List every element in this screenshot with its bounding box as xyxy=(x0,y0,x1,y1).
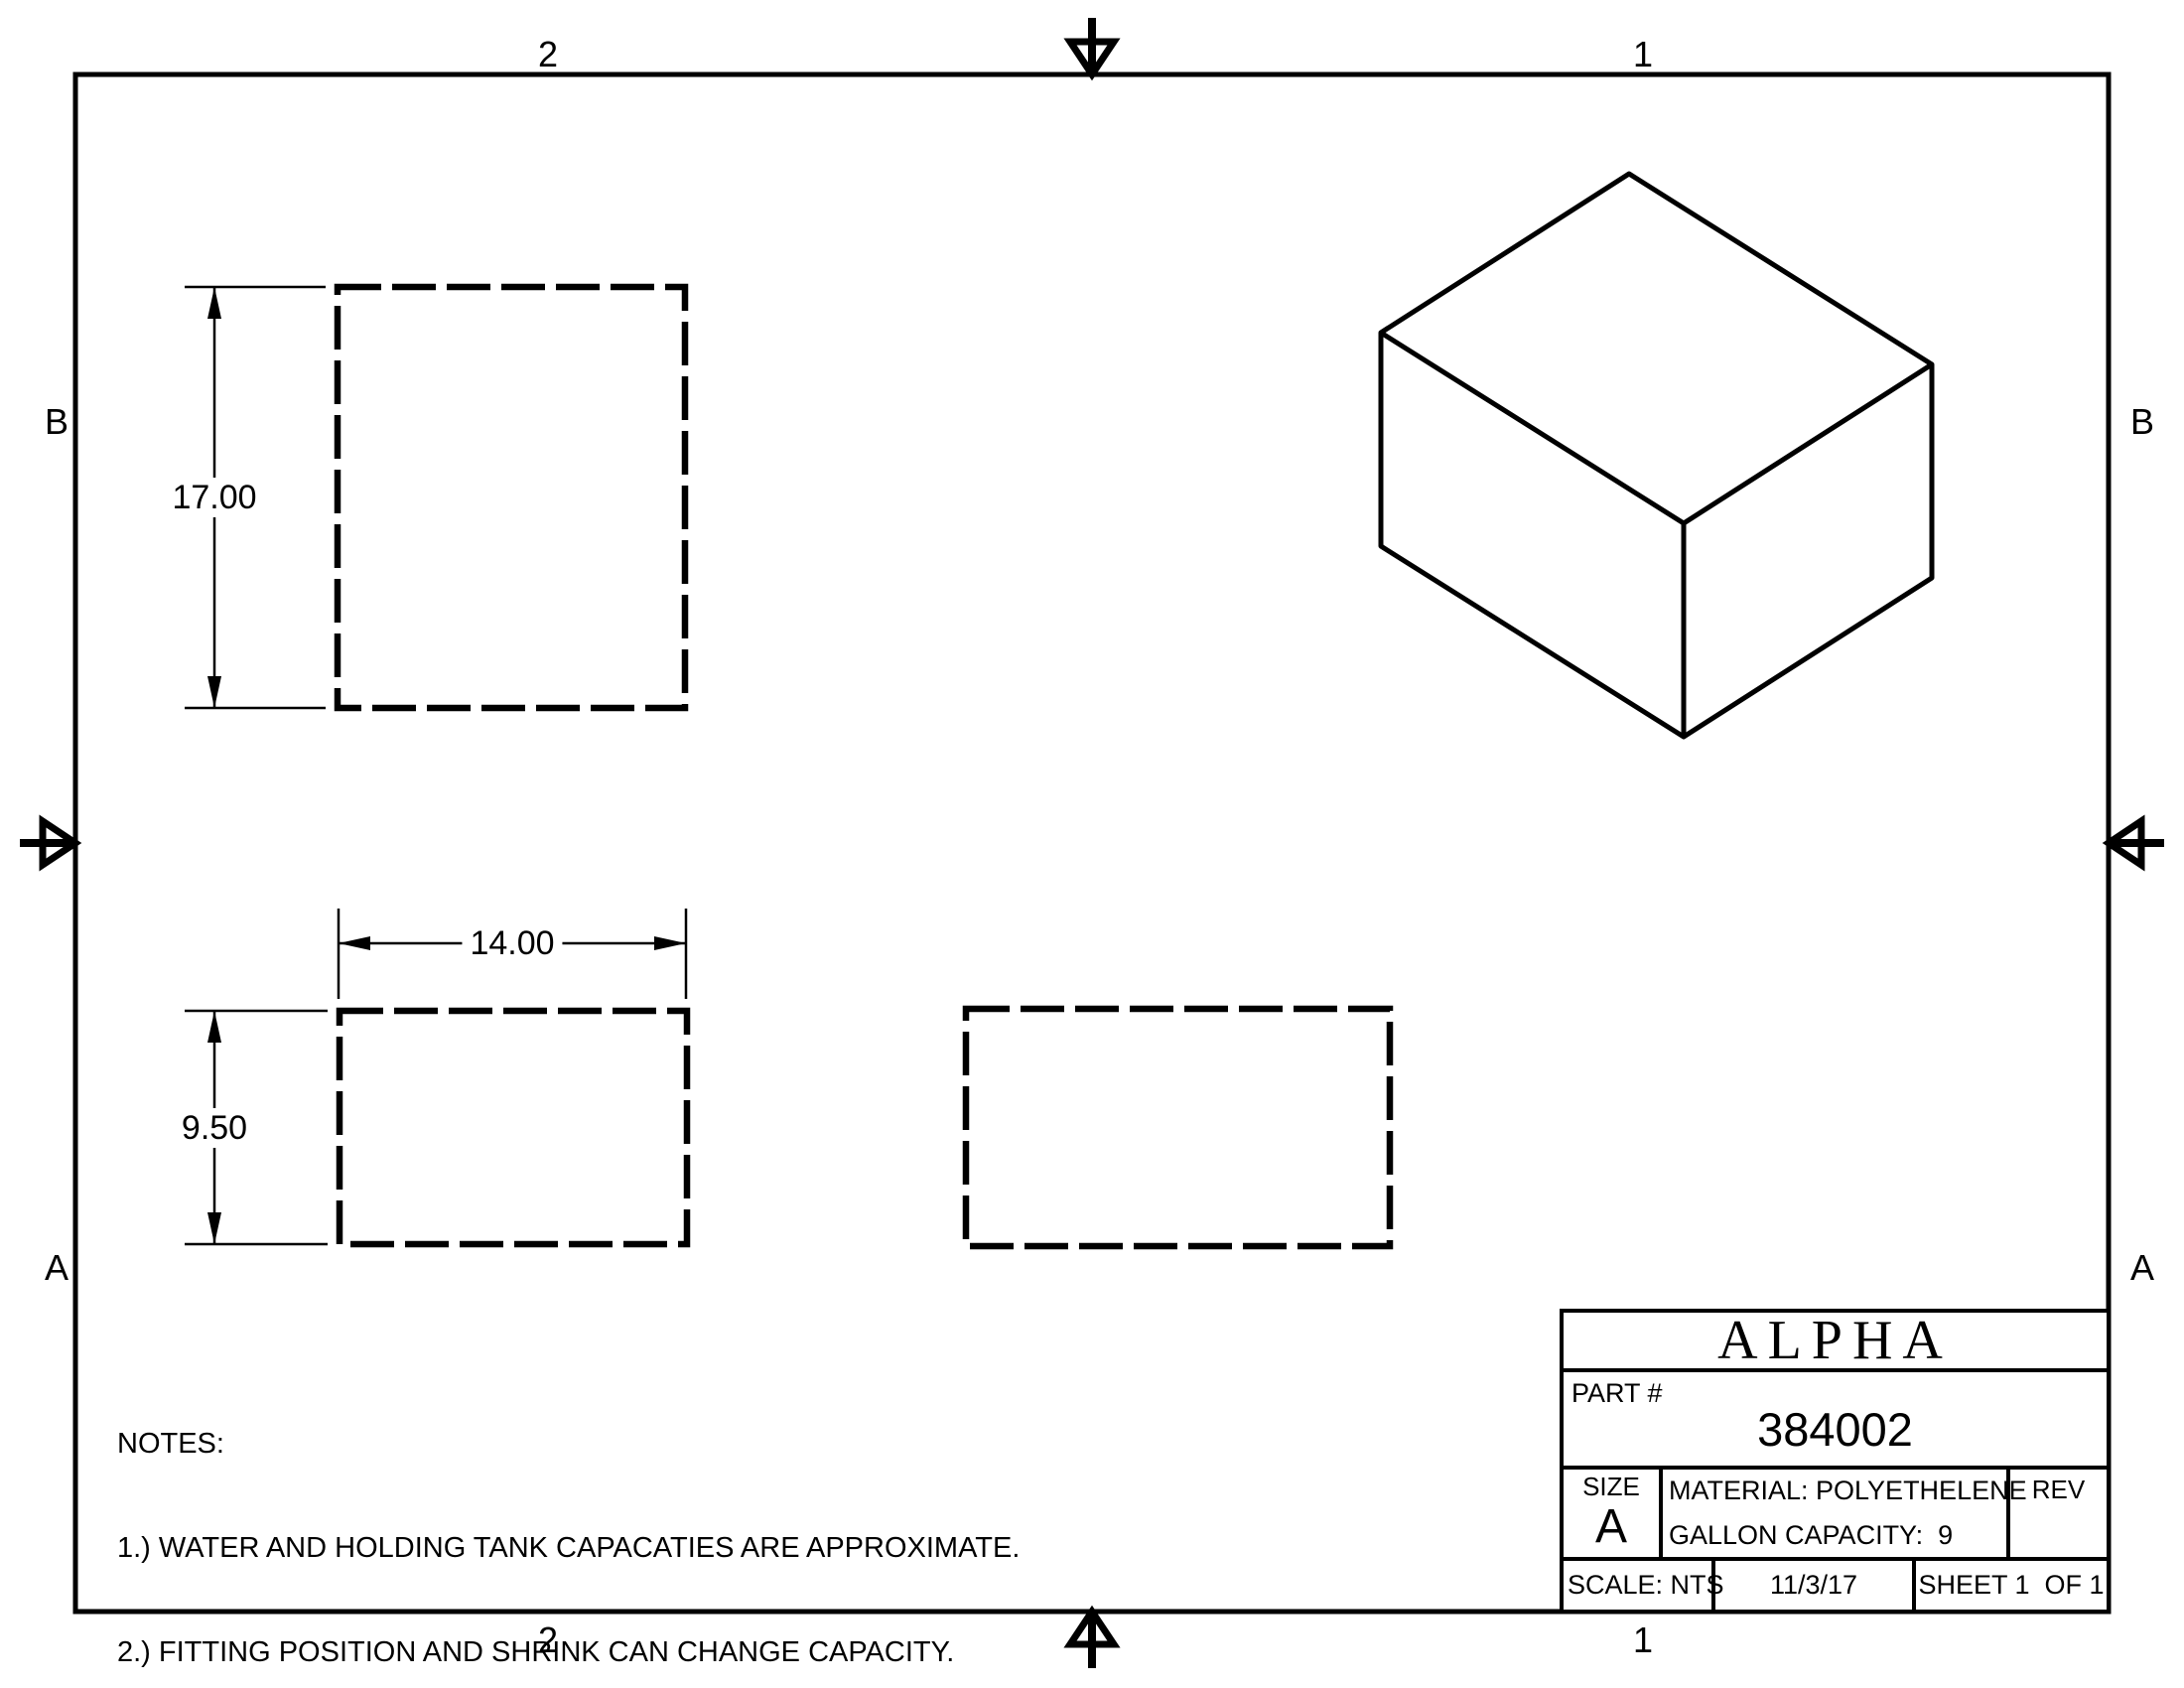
part-number-value: 384002 xyxy=(1564,1406,2107,1453)
material-value: MATERIAL: POLYETHELENE xyxy=(1669,1475,2000,1512)
part-number-label: PART # xyxy=(1571,1378,1663,1409)
alignment-marker-right-icon xyxy=(2109,821,2164,865)
alignment-marker-top-icon xyxy=(1070,18,1114,74)
size-material-rev-row: SIZE A MATERIAL: POLYETHELENE GALLON CAP… xyxy=(1564,1470,2107,1561)
scale-date-sheet-row: SCALE: NTS 11/3/17 SHEET 1 OF 1 xyxy=(1564,1561,2107,1610)
scale-value: SCALE: NTS xyxy=(1564,1561,1715,1610)
material-cell: MATERIAL: POLYETHELENE GALLON CAPACITY: … xyxy=(1663,1470,2010,1557)
drawing-sheet: 2 1 2 1 B A B A 17.00 14.00 9.50 NOTES: … xyxy=(0,0,2184,1688)
alignment-marker-bottom-icon xyxy=(1070,1612,1114,1668)
part-number-row: PART # 384002 xyxy=(1564,1372,2107,1470)
zone-label-top-2: 2 xyxy=(538,37,558,72)
dimension-value-width: 14.00 xyxy=(462,923,562,963)
dimension-value-height: 17.00 xyxy=(164,478,264,517)
size-cell: SIZE A xyxy=(1564,1470,1663,1557)
zone-label-left-b: B xyxy=(45,404,68,440)
note-line-1: 1.) WATER AND HOLDING TANK CAPACATIES AR… xyxy=(117,1531,1020,1566)
gallon-capacity-value: GALLON CAPACITY: 9 xyxy=(1669,1519,2000,1557)
note-line-2: 2.) FITTING POSITION AND SHRINK CAN CHAN… xyxy=(117,1635,1020,1670)
notes-block: NOTES: 1.) WATER AND HOLDING TANK CAPACA… xyxy=(117,1357,1020,1688)
notes-title: NOTES: xyxy=(117,1427,1020,1462)
zone-label-right-b: B xyxy=(2130,404,2154,440)
size-value: A xyxy=(1595,1501,1627,1554)
zone-label-left-a: A xyxy=(45,1250,68,1286)
zone-label-right-a: A xyxy=(2130,1250,2154,1286)
top-view-outline xyxy=(340,1011,687,1244)
isometric-view xyxy=(1381,174,1932,737)
rev-label: REV xyxy=(2032,1475,2085,1557)
date-value: 11/3/17 xyxy=(1715,1561,1916,1610)
side-view-outline xyxy=(966,1009,1390,1246)
alignment-marker-left-icon xyxy=(20,821,75,865)
front-view-outline xyxy=(338,287,685,708)
company-name: ALPHA xyxy=(1564,1313,2107,1372)
title-block: ALPHA PART # 384002 SIZE A MATERIAL: POL… xyxy=(1560,1309,2111,1614)
sheet-value: SHEET 1 OF 1 xyxy=(1916,1561,2107,1610)
dimension-value-depth: 9.50 xyxy=(174,1108,255,1148)
zone-label-bottom-1: 1 xyxy=(1633,1622,1653,1658)
size-label: SIZE xyxy=(1582,1473,1640,1501)
zone-label-top-1: 1 xyxy=(1633,37,1653,72)
rev-cell: REV xyxy=(2010,1470,2107,1557)
